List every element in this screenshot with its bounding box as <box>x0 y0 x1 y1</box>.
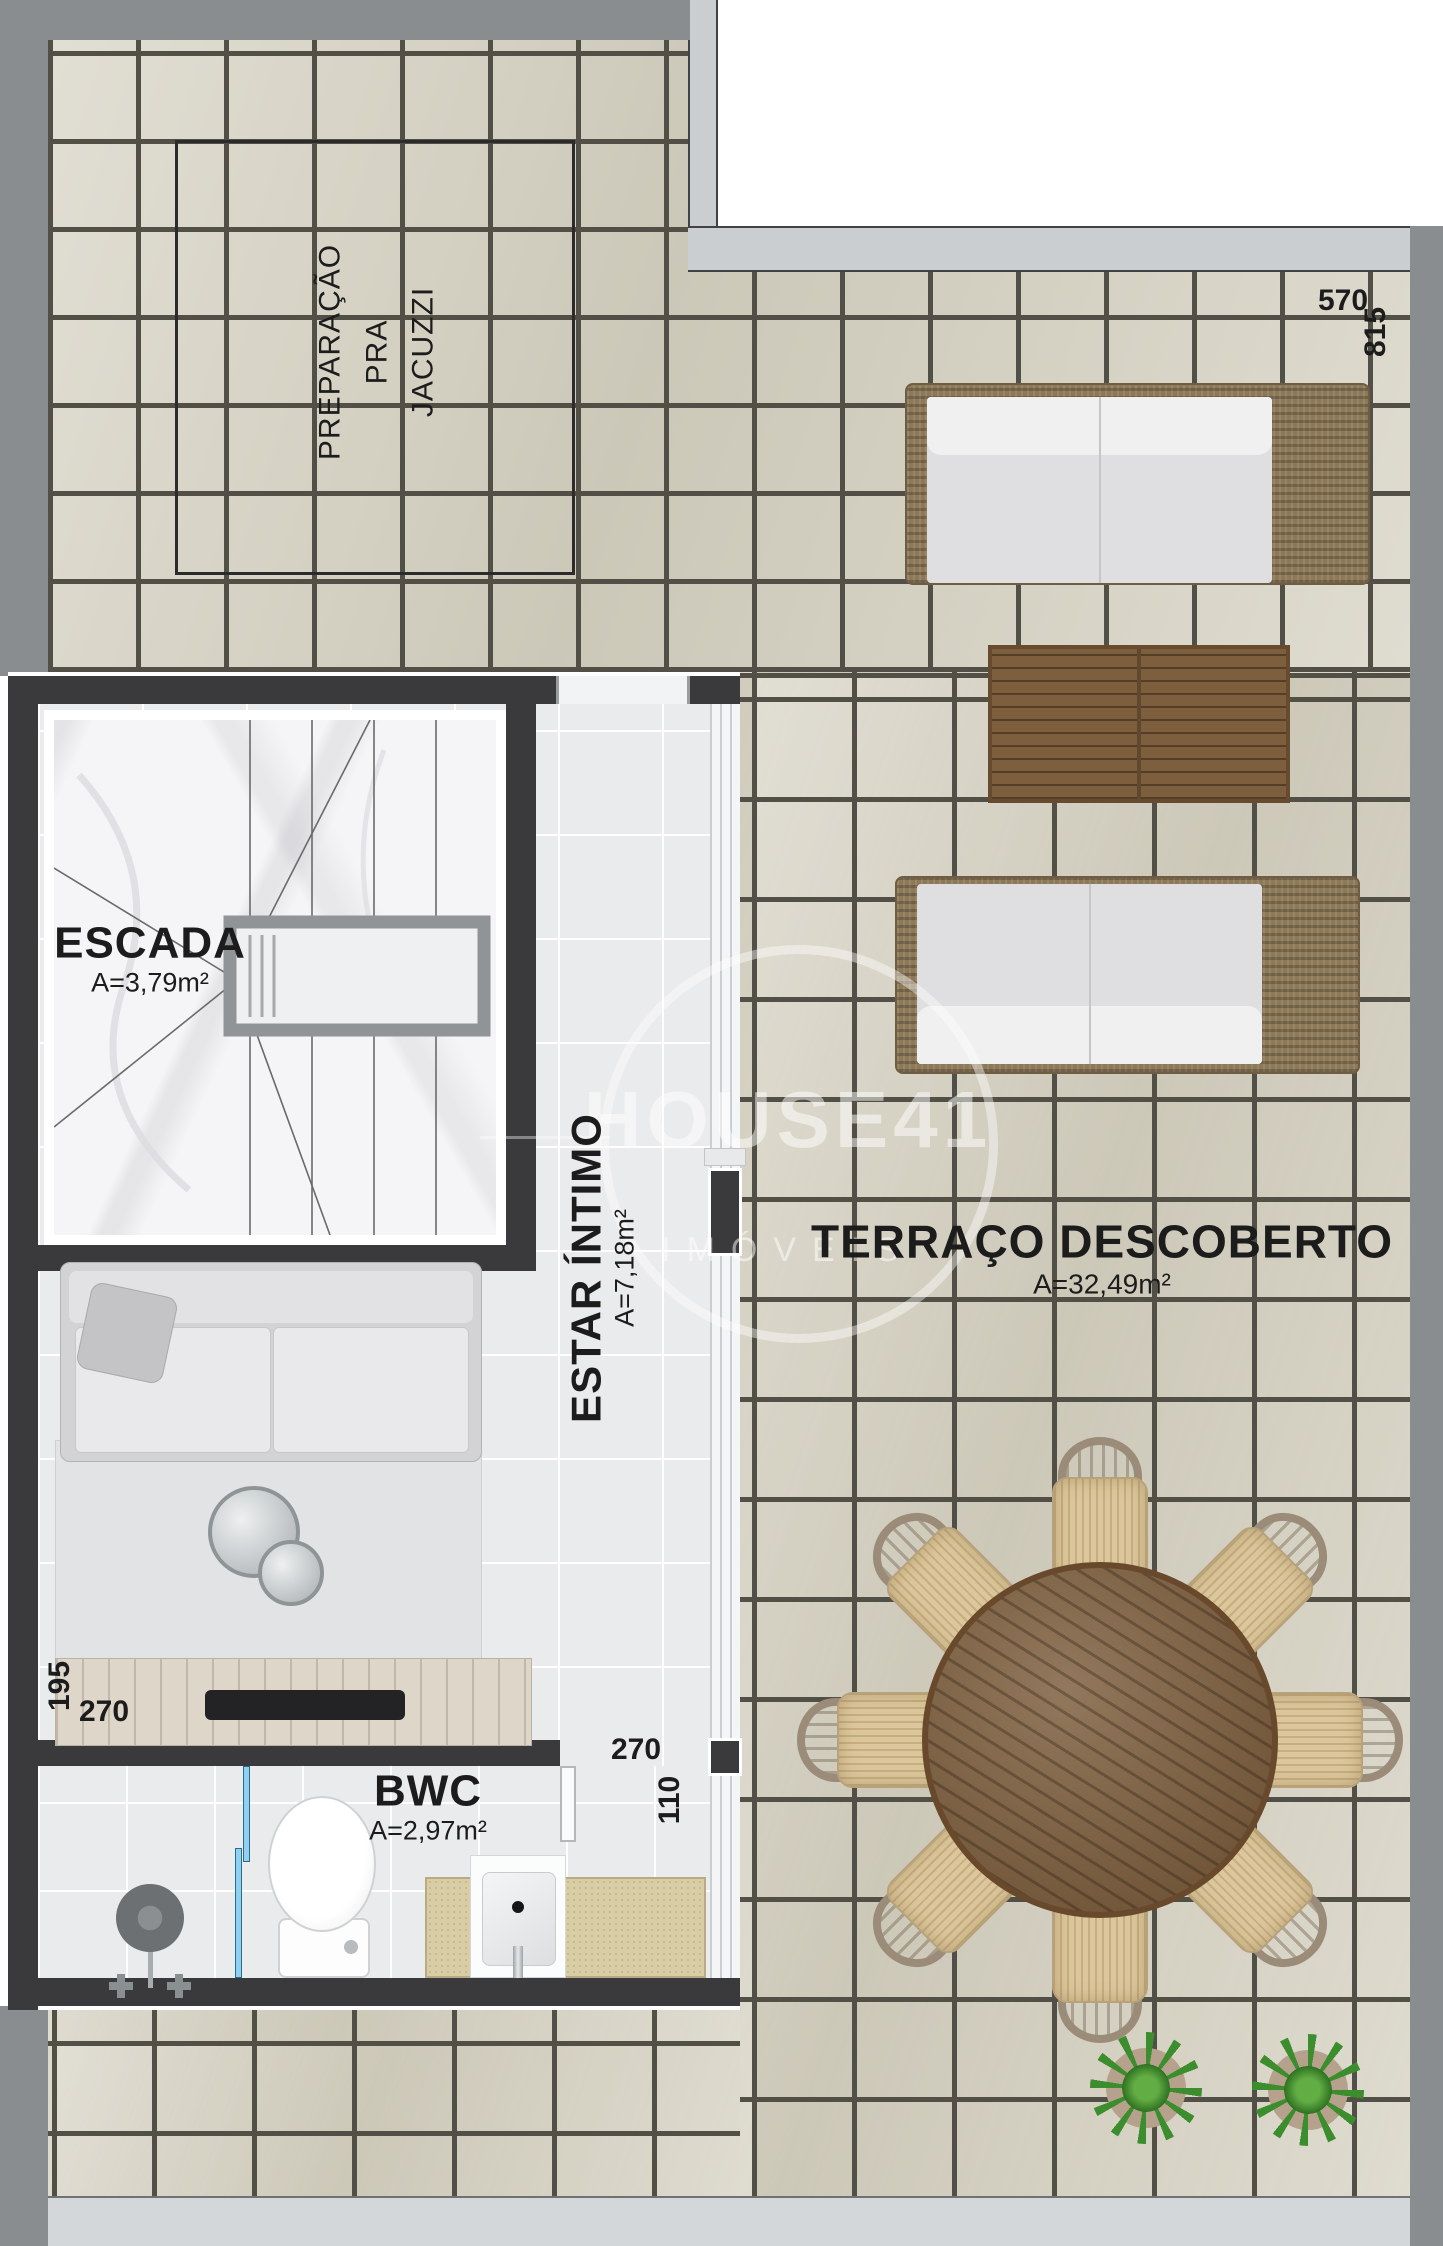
terrace-sofa-bottom <box>895 876 1360 1074</box>
terrace-sofa-top-divider <box>1099 397 1101 583</box>
escada-name: ESCADA <box>54 918 246 967</box>
estar-label: ESTAR ÍNTIMO A=7,18m² <box>562 1113 639 1423</box>
estar-area: A=7,18m² <box>609 1113 639 1423</box>
shower-head-icon <box>116 1884 184 1952</box>
window-dark-pane-upper <box>708 1168 742 1256</box>
terrace-tiles-bottom <box>48 2006 740 2196</box>
roof-notch <box>717 0 1443 226</box>
shower-glass-lower <box>235 1848 242 1978</box>
dimension-815: 815 <box>1359 307 1393 357</box>
dimension-270-mid: 270 <box>611 1733 661 1767</box>
door-handle-block <box>704 1148 746 1166</box>
side-table-small <box>258 1540 324 1606</box>
sofa-seat-right <box>273 1327 469 1453</box>
outer-band-top <box>0 0 690 40</box>
window-north <box>556 676 690 704</box>
plant-core <box>1122 2064 1170 2112</box>
terraco-name: TERRAÇO DESCOBERTO <box>811 1217 1393 1269</box>
jacuzzi-preparation-note: PREPARAÇÃO PRA JACUZZI <box>307 244 447 460</box>
bwc-area: A=2,97m² <box>369 1816 487 1846</box>
terraco-label: TERRAÇO DESCOBERTO A=32,49m² <box>811 1217 1393 1300</box>
shower-glass-upper <box>243 1766 250 1862</box>
bwc-label: BWC A=2,97m² <box>369 1766 487 1846</box>
dimension-110: 110 <box>653 1776 687 1824</box>
estar-name: ESTAR ÍNTIMO <box>562 1113 609 1423</box>
parapet-horizontal <box>688 226 1412 272</box>
outer-band-left-lower <box>0 2006 48 2246</box>
glass-facade <box>710 704 740 1978</box>
terrace-sofa-bottom-divider <box>1089 884 1091 1064</box>
escada-label: ESCADA A=3,79m² <box>54 918 246 998</box>
bottom-ledge <box>48 2196 1410 2246</box>
shower-valve-right-stem <box>175 1974 183 1998</box>
escada-area: A=3,79m² <box>54 968 246 998</box>
wall-west <box>8 676 38 2010</box>
floorplan-canvas: PREPARAÇÃO PRA JACUZZI <box>0 0 1443 2246</box>
terraco-area: A=32,49m² <box>811 1268 1393 1299</box>
window-dark-pane-lower <box>708 1738 742 1776</box>
dining-table <box>922 1562 1278 1918</box>
dimension-195: 195 <box>43 1661 77 1711</box>
dimension-270-left: 270 <box>79 1695 129 1729</box>
outer-band-left-upper <box>0 0 48 676</box>
coffee-table-gap <box>1137 649 1141 799</box>
wall-escada-east <box>506 676 536 1271</box>
sink-drain <box>512 1901 524 1913</box>
toilet-button <box>344 1940 358 1954</box>
terrace-sofa-top <box>905 383 1370 585</box>
shower-valve-left-stem <box>117 1974 125 1998</box>
sink-faucet <box>513 1946 523 1978</box>
bwc-name: BWC <box>369 1766 487 1815</box>
indoor-sofa <box>60 1262 482 1462</box>
plant-core <box>1284 2066 1332 2114</box>
tv <box>205 1690 405 1720</box>
toilet-bowl <box>268 1796 376 1932</box>
bwc-door-leaf <box>560 1766 576 1842</box>
outer-band-right <box>1410 226 1443 2246</box>
terrace-coffee-table <box>988 645 1290 803</box>
sofa-pillow <box>75 1281 179 1385</box>
